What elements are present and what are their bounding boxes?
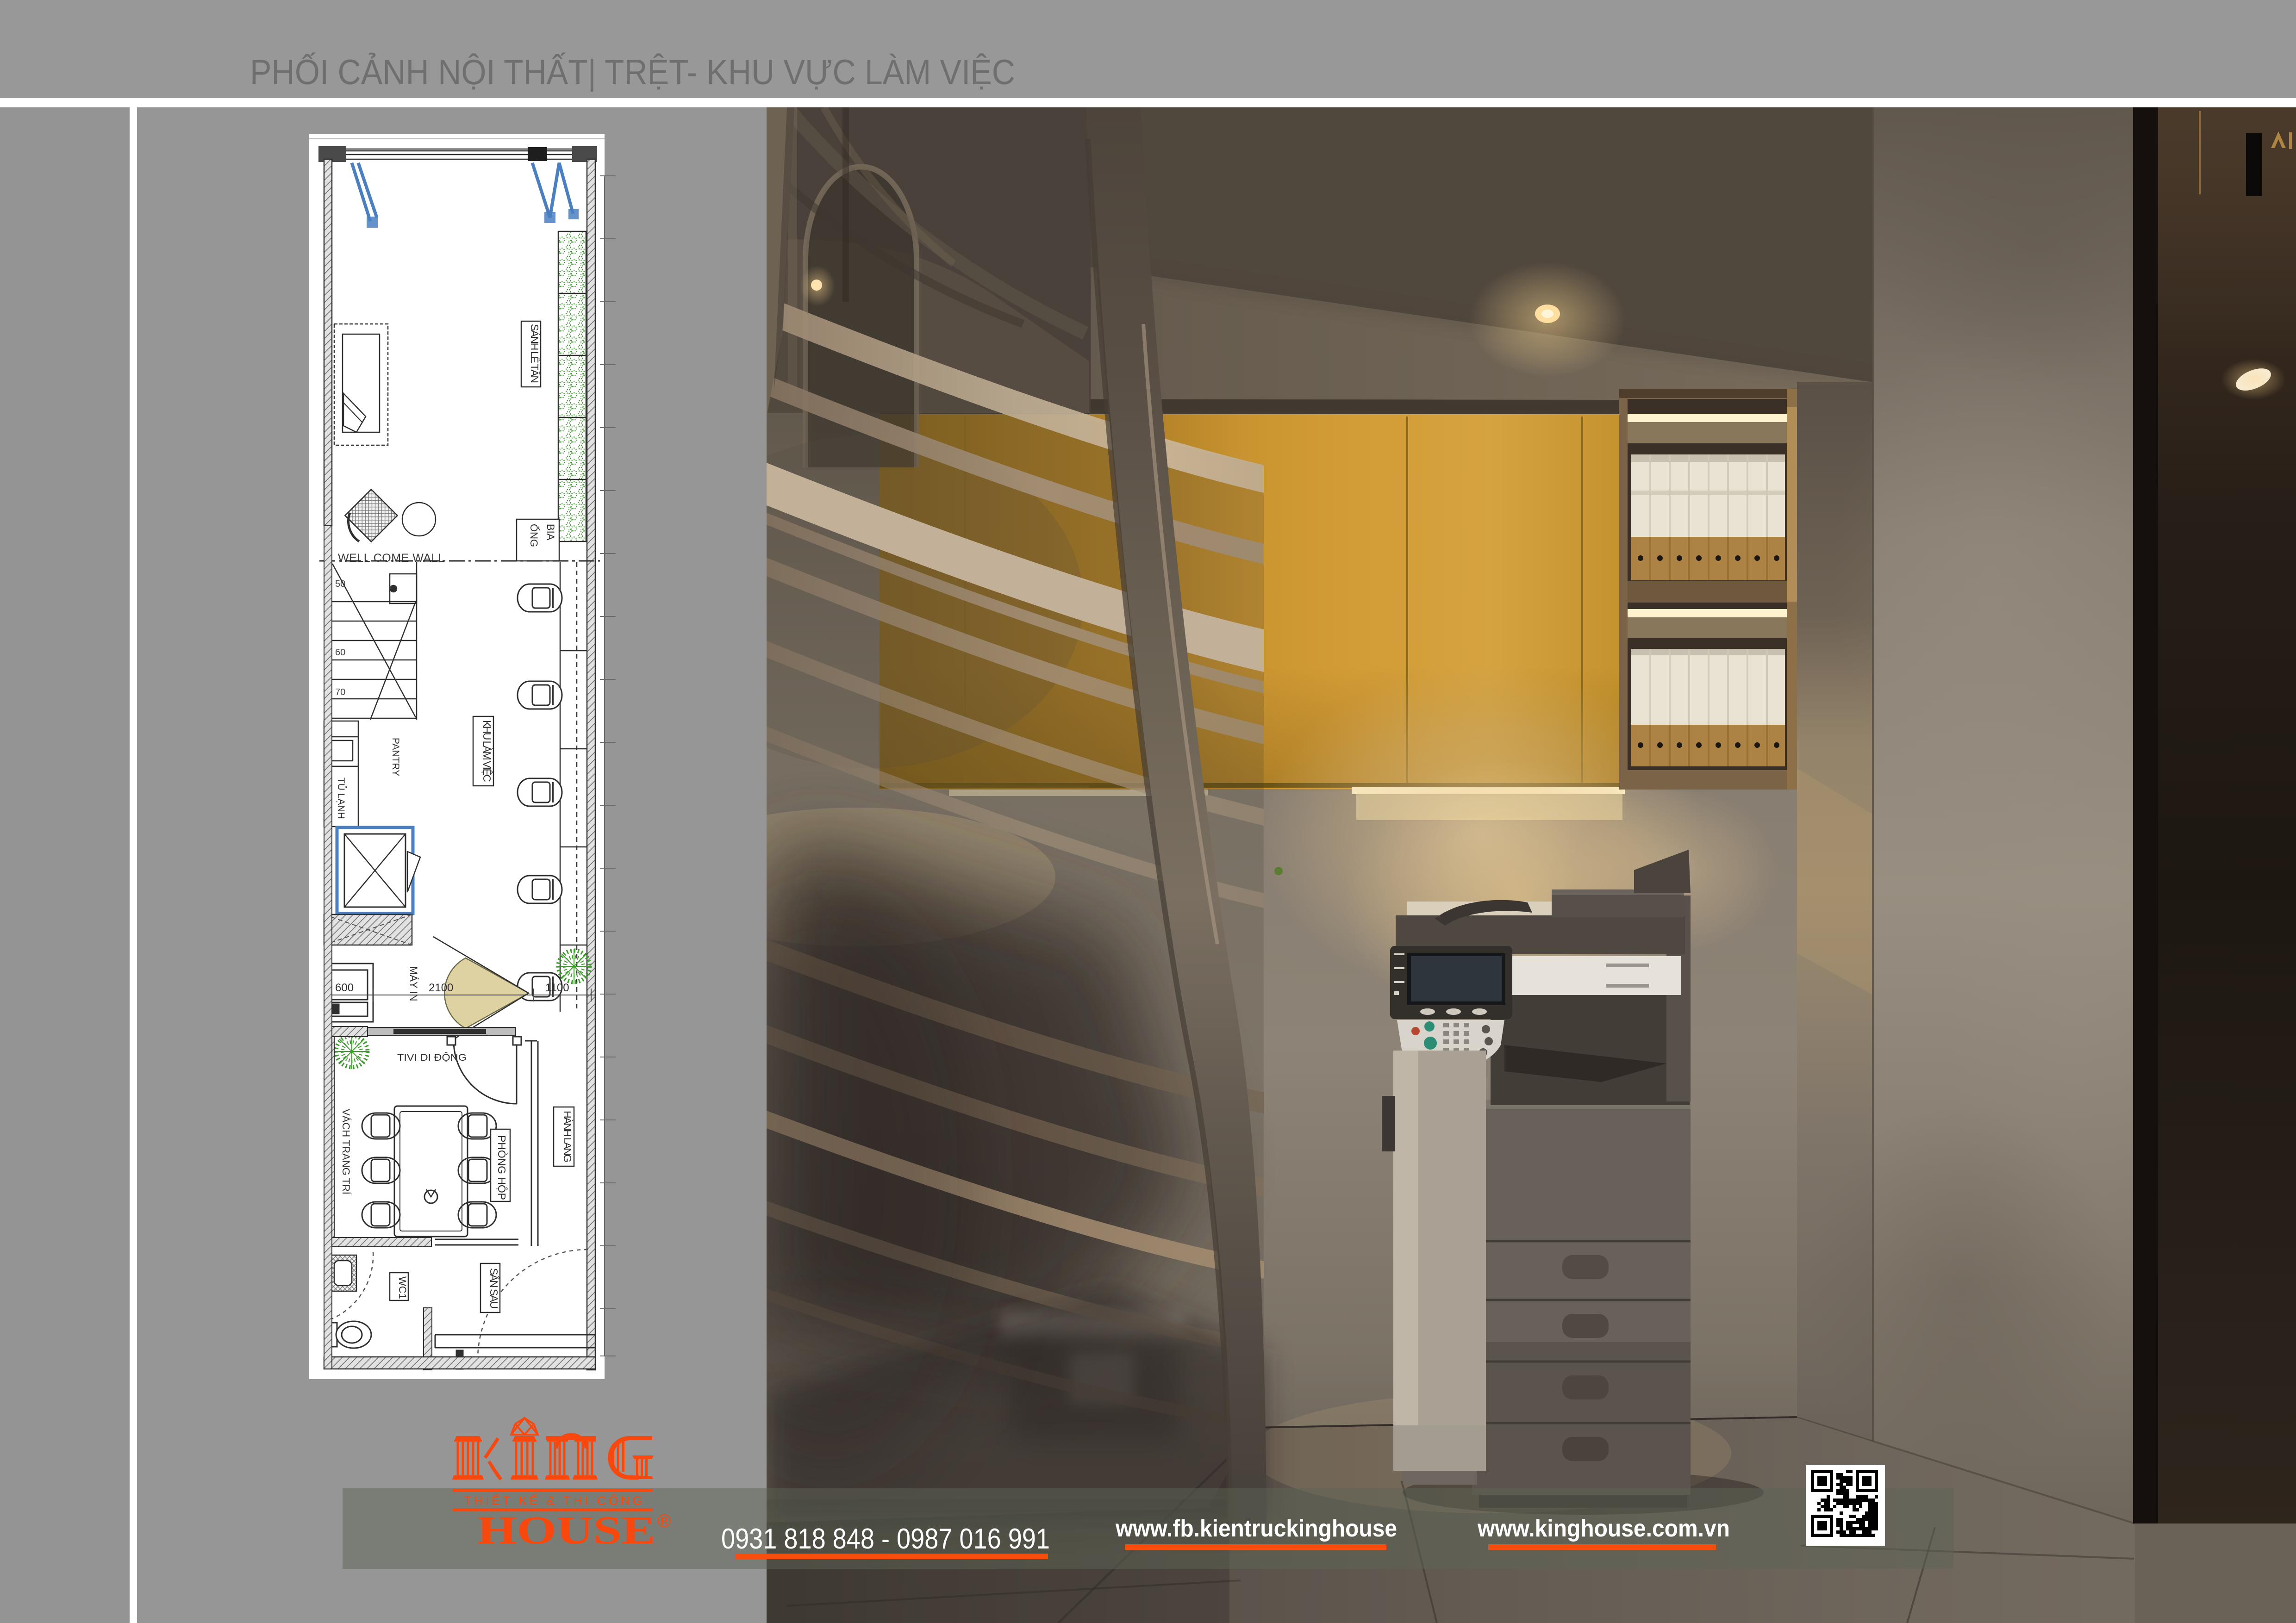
svg-text:60: 60 [335,647,345,658]
svg-text:WELL COME WALL: WELL COME WALL [338,552,444,565]
svg-text:1100: 1100 [545,982,569,994]
svg-text:KHU LÀM VIỆC: KHU LÀM VIỆC [481,720,493,782]
svg-text:SÂN SAU: SÂN SAU [488,1268,500,1309]
svg-text:MÁY IN: MÁY IN [408,966,419,1001]
svg-text:ỐNG: ỐNG [528,524,540,547]
svg-text:2100: 2100 [429,982,453,994]
svg-text:PHÒNG HỘP: PHÒNG HỘP [496,1135,508,1200]
svg-text:WC1: WC1 [397,1276,408,1299]
svg-text:www.kinghouse.com.vn: www.kinghouse.com.vn [1477,1515,1730,1542]
svg-text:SẢNH LỄ TÂN: SẢNH LỄ TÂN [529,324,542,383]
svg-text:HOUSE: HOUSE [477,1508,655,1552]
svg-text:PANTRY: PANTRY [390,738,401,776]
svg-text:HÀNH LANG: HÀNH LANG [562,1111,574,1163]
svg-text:0931 818 848 - 0987 016 991: 0931 818 848 - 0987 016 991 [721,1523,1050,1555]
svg-text:50: 50 [335,579,345,589]
svg-text:600: 600 [335,982,354,994]
svg-text:TỦ LẠNH: TỦ LẠNH [336,777,347,819]
svg-text:www.fb.kientruckinghouse: www.fb.kientruckinghouse [1115,1515,1397,1542]
svg-text:BIA: BIA [545,524,556,541]
svg-text:®: ® [657,1511,671,1531]
svg-text:70: 70 [335,687,345,697]
svg-text:PHỐI CẢNH NỘI THẤT| TRỆT- KHU: PHỐI CẢNH NỘI THẤT| TRỆT- KHU VỰC LÀM VI… [250,53,1015,92]
svg-text:THIẾT KẾ & THI CÔNG: THIẾT KẾ & THI CÔNG [464,1493,645,1508]
svg-text:VÁCH TRANG TRÍ: VÁCH TRANG TRÍ [340,1109,352,1195]
